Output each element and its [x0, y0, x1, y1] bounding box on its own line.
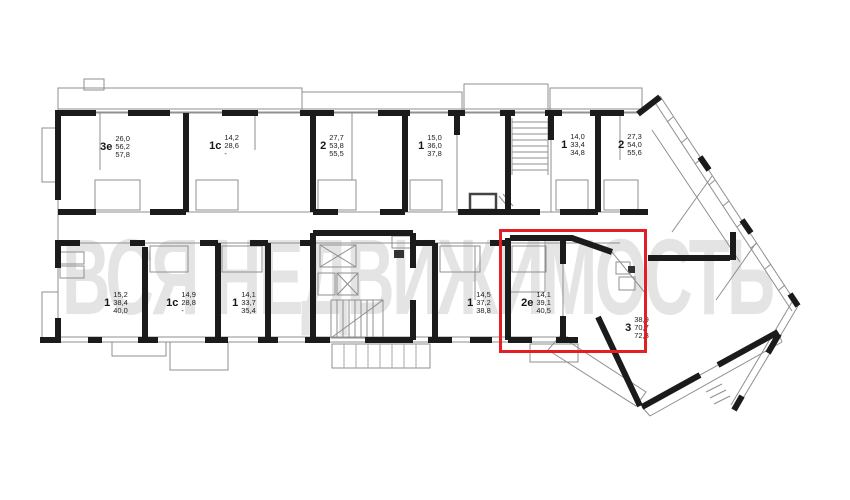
area-3: 35,4	[241, 307, 256, 315]
apartment-label-2-top[interactable]: 2 27,753,855,5	[320, 134, 344, 158]
staircase-icon	[331, 300, 383, 338]
apartment-label-1s-bottom[interactable]: 1с 14,928,8-	[166, 291, 196, 315]
area-3: 37,8	[427, 150, 442, 158]
apartment-label-2-right[interactable]: 2 27,354,055,6	[618, 133, 642, 157]
apartment-label-3e[interactable]: 3е 26,056,257,8	[100, 135, 130, 159]
corridor-lines	[62, 135, 648, 243]
area-3: 34,8	[570, 149, 585, 157]
apartment-type: 3е	[100, 142, 112, 153]
apartment-type: 1	[104, 298, 110, 309]
apartment-type: 2	[618, 140, 624, 151]
floorplan-page: ВСЯ НЕДВИЖИМОСТЬ	[0, 0, 850, 500]
apartment-type: 1	[232, 298, 238, 309]
area-3: 57,8	[115, 151, 130, 159]
apartment-label-1s-top[interactable]: 1с 14,228,6-	[209, 134, 239, 158]
apartment-label-1-bottom-c[interactable]: 1 14,537,238,8	[467, 291, 491, 315]
area-3: -	[181, 307, 196, 315]
area-3: 55,6	[627, 149, 642, 157]
apartment-type: 1	[561, 140, 567, 151]
area-3: -	[224, 150, 239, 158]
apartment-type: 2	[320, 141, 326, 152]
apartment-type: 1	[418, 141, 424, 152]
apartment-type: 1с	[166, 298, 178, 309]
selected-apartment-highlight[interactable]	[499, 229, 647, 353]
area-3: 40,0	[113, 307, 128, 315]
floor-plan-drawing	[0, 0, 850, 500]
apartment-type: 1	[467, 298, 473, 309]
area-3: 38,8	[476, 307, 491, 315]
apartment-label-1-bottom-a[interactable]: 1 15,238,440,0	[104, 291, 128, 315]
apartment-label-1-bottom-b[interactable]: 1 14,133,735,4	[232, 291, 256, 315]
apartment-type: 1с	[209, 141, 221, 152]
apartment-label-1-top-b[interactable]: 1 14,033,434,8	[561, 133, 585, 157]
area-3: 55,5	[329, 150, 344, 158]
elevator-shaft-icon	[318, 245, 358, 295]
apartment-label-1-top-a[interactable]: 1 15,036,037,8	[418, 134, 442, 158]
